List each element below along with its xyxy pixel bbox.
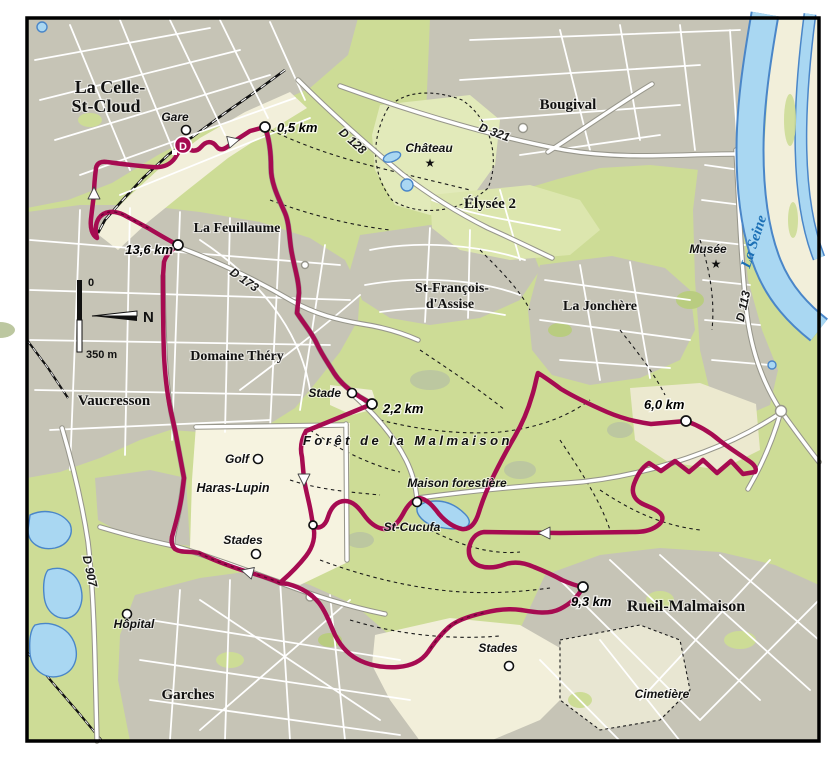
distance-label-136: 13,6 km: [125, 242, 173, 257]
chateau-star-icon: ★: [425, 156, 436, 170]
label-rueil: Rueil-Malmaison: [627, 598, 745, 615]
label-foret: Forêt de la Malmaison: [303, 433, 513, 448]
north-label: N: [143, 309, 154, 326]
label-jonchere: La Jonchère: [563, 299, 637, 314]
label-cimetiere: Cimetière: [635, 687, 690, 701]
start-marker-label: D: [179, 141, 187, 153]
label-la-celle-2: St-Cloud: [71, 96, 140, 116]
label-stades-bottom: Stades: [478, 641, 518, 655]
stade-circle: [348, 389, 357, 398]
scalebar-white: [77, 320, 82, 352]
label-la-celle-1: La Celle-: [75, 77, 145, 97]
label-bougival: Bougival: [540, 97, 597, 113]
marker-136km-node: [173, 240, 183, 250]
scalebar-zero: 0: [88, 277, 94, 289]
label-stade: Stade: [308, 386, 341, 400]
label-maison-forestiere: Maison forestière: [407, 476, 507, 490]
distance-label-05: 0,5 km: [277, 120, 318, 135]
label-st-francois-1: St-François-: [415, 281, 489, 296]
label-garches: Garches: [161, 687, 214, 703]
label-feuillaume: La Feuillaume: [194, 221, 281, 236]
label-stades-haras: Stades: [223, 533, 263, 547]
label-domaine-thery: Domaine Théry: [190, 349, 283, 364]
label-chateau: Château: [405, 141, 453, 155]
golf-circle: [254, 455, 263, 464]
gare-circle: [182, 126, 191, 135]
stades-bottom-circle: [505, 662, 514, 671]
marker-22km-node: [367, 399, 377, 409]
label-gare: Gare: [161, 110, 189, 124]
label-st-cucufa: St-Cucufa: [384, 520, 441, 534]
map-page: ★ ★ 0,5 km 2,2 km 6,0 km 9,3 km 13,6 km …: [0, 0, 840, 760]
waypoint-node: [309, 521, 317, 529]
maison-forestiere-circle: [413, 498, 422, 507]
label-st-francois-2: d'Assise: [426, 297, 474, 312]
distance-label-22: 2,2 km: [382, 401, 424, 416]
label-golf: Golf: [225, 452, 250, 466]
distance-label-93: 9,3 km: [571, 594, 612, 609]
marker-93km-node: [578, 582, 588, 592]
label-haras: Haras-Lupin: [197, 481, 270, 495]
marker-05km-node: [260, 122, 270, 132]
musee-star-icon: ★: [711, 257, 722, 271]
label-hopital: Hôpital: [114, 617, 155, 631]
route-map: ★ ★ 0,5 km 2,2 km 6,0 km 9,3 km 13,6 km …: [0, 0, 840, 760]
label-vaucresson: Vaucresson: [78, 393, 151, 409]
distance-label-60: 6,0 km: [644, 397, 685, 412]
label-elysee: Élysée 2: [464, 195, 516, 212]
scalebar-length: 350 m: [86, 349, 117, 361]
stades-haras-circle: [252, 550, 261, 559]
scalebar-black: [77, 280, 82, 320]
label-musee: Musée: [689, 242, 727, 256]
marker-60km-node: [681, 416, 691, 426]
